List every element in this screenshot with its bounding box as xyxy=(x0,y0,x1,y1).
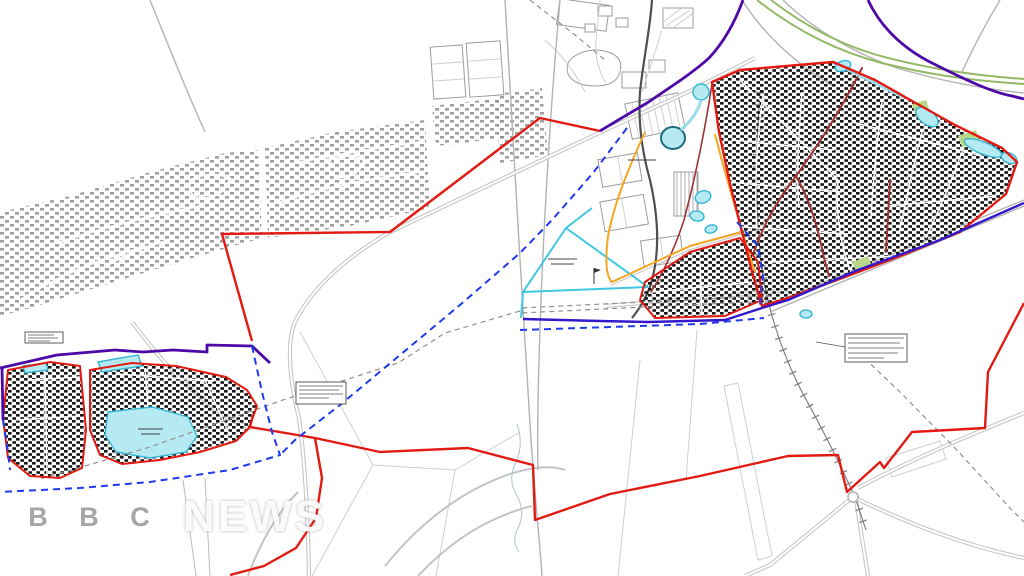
sports-pitch xyxy=(466,41,504,97)
sports-pitch xyxy=(430,45,466,99)
stream xyxy=(512,424,522,552)
pond xyxy=(693,84,709,100)
roundabout xyxy=(848,492,858,502)
woodland-outline xyxy=(567,50,621,86)
football-pitch xyxy=(600,194,649,231)
notice-existing-housing xyxy=(25,332,63,343)
bbc-logo-block-1: B xyxy=(22,499,54,536)
notice-railway-right xyxy=(816,334,907,362)
notice-centre-left xyxy=(296,382,346,404)
masterplan-map xyxy=(0,0,1024,576)
bbc-news-wordmark: NEWS xyxy=(183,492,327,542)
existing-housing-areas xyxy=(0,88,548,316)
open-space-label xyxy=(548,259,601,284)
bbc-logo-block-2: B xyxy=(73,499,105,536)
bbc-news-map-image: B B C NEWS xyxy=(0,0,1024,576)
road-network xyxy=(132,0,1024,576)
bbc-logo-block-3: C xyxy=(124,499,156,536)
bbc-news-watermark: B B C NEWS xyxy=(22,492,327,542)
